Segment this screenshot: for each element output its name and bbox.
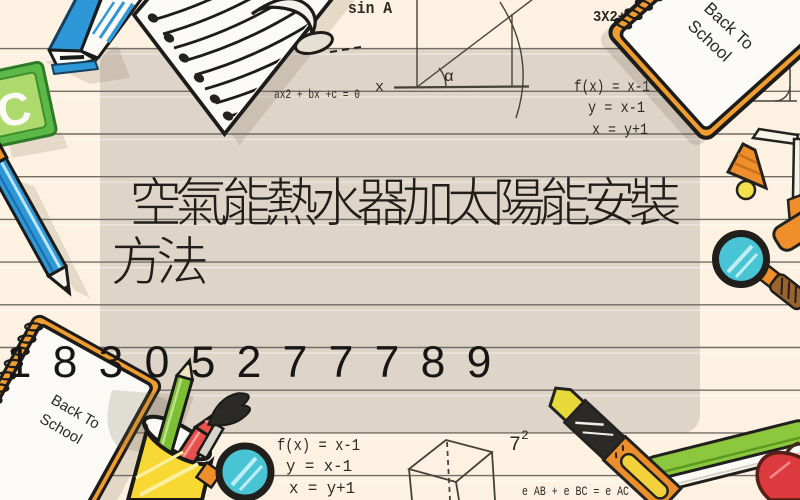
svg-text:7: 7 bbox=[509, 434, 521, 457]
svg-text:y = x-1: y = x-1 bbox=[588, 99, 645, 117]
svg-text:y = x-1: y = x-1 bbox=[286, 458, 352, 477]
svg-text:x = y+1: x = y+1 bbox=[592, 121, 648, 139]
svg-text:f(x) = x-1: f(x) = x-1 bbox=[277, 437, 360, 456]
svg-text:ax2 + bx +c = 0: ax2 + bx +c = 0 bbox=[274, 87, 360, 102]
svg-text:e AB + e BC = e AC: e AB + e BC = e AC bbox=[522, 484, 629, 499]
svg-text:x: x bbox=[375, 79, 384, 96]
svg-text:x = y+1: x = y+1 bbox=[289, 480, 355, 499]
svg-text:α: α bbox=[444, 68, 454, 86]
svg-text:2: 2 bbox=[521, 428, 529, 443]
svg-text:sin A: sin A bbox=[348, 0, 393, 19]
